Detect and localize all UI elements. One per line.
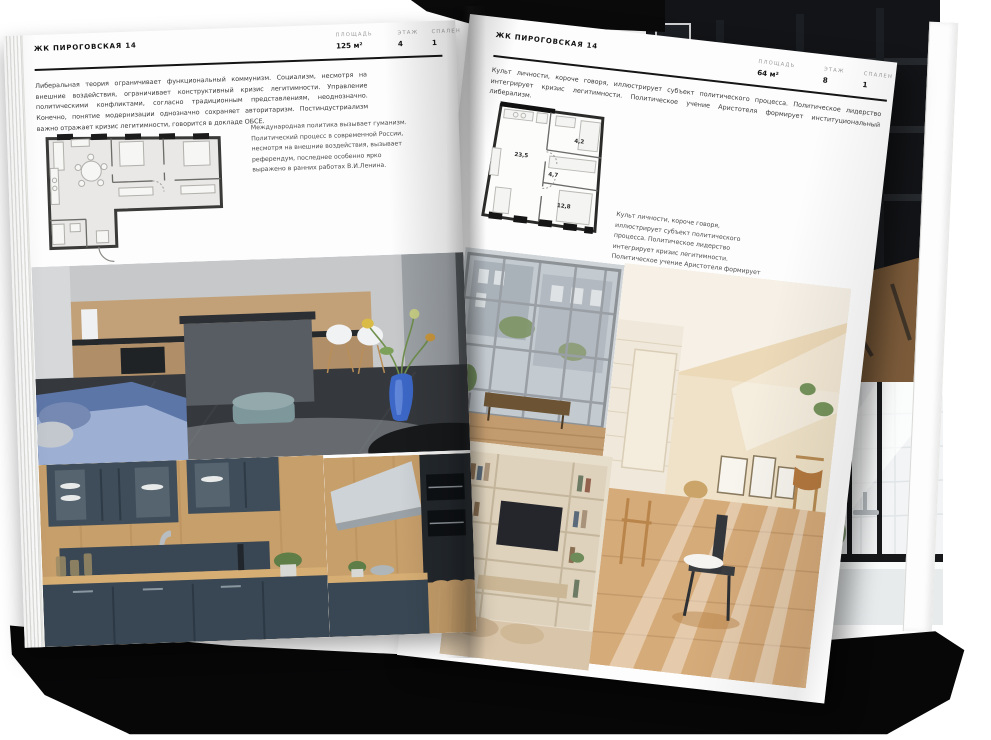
kitchen-navy-cabinets-image xyxy=(38,455,329,647)
left-spec-bedrooms: СПАЛЕН 1 xyxy=(431,28,461,47)
photo-kitchen-island-living xyxy=(32,252,471,465)
floorplan-125-drawing xyxy=(33,118,238,277)
photo-kitchen-navy-hood xyxy=(323,453,476,637)
left-spec-floor-value: 4 xyxy=(398,39,419,49)
right-spec-bedrooms-value: 1 xyxy=(862,80,892,92)
room-area-hall: 4,7 xyxy=(548,172,559,179)
left-header-rule xyxy=(35,55,443,71)
right-spec-area-value: 64 м² xyxy=(757,68,795,81)
left-spec-bedrooms-value: 1 xyxy=(432,37,462,47)
right-spec-bedrooms: СПАЛЕН 1 xyxy=(862,71,893,92)
right-page-title: ЖК ПИРОГОВСКАЯ 14 xyxy=(495,31,598,51)
left-spec-floor: ЭТАЖ 4 xyxy=(397,30,418,49)
floorplan-125 xyxy=(33,118,238,277)
window-wall-loft-image xyxy=(443,247,625,464)
left-caption: Международная политика вызывает гуманизм… xyxy=(251,118,411,176)
floorplan-64: 23,5 4,7 4,2 12,8 xyxy=(465,92,630,250)
left-spec-area-value: 125 м² xyxy=(336,40,373,50)
kitchen-island-living-image xyxy=(32,252,471,465)
left-spec-bedrooms-label: СПАЛЕН xyxy=(431,28,461,35)
right-spec-area: ПЛОЩАДЬ 64 м² xyxy=(757,59,796,81)
right-spec-floor-value: 8 xyxy=(822,75,844,86)
magazine-mockup-scene: ЖК ПИРОГОВСКАЯ 14 ПЛОЩАДЬ 64 м² ЭТАЖ 8 С… xyxy=(0,0,991,740)
right-spec-floor-label: ЭТАЖ xyxy=(824,66,845,74)
left-spec-area: ПЛОЩАДЬ 125 м² xyxy=(336,31,374,50)
right-spec-floor: ЭТАЖ 8 xyxy=(822,66,845,86)
left-spec-area-label: ПЛОЩАДЬ xyxy=(336,31,373,38)
photo-kitchen-navy-cabinets xyxy=(38,455,329,647)
left-spec-floor-label: ЭТАЖ xyxy=(397,30,418,37)
room-area-bathroom: 4,2 xyxy=(574,139,585,146)
sunlit-attic-room-image xyxy=(579,263,851,688)
left-page: ЖК ПИРОГОВСКАЯ 14 ПЛОЩАДЬ 125 м² ЭТАЖ 4 … xyxy=(3,20,476,647)
right-spec-bedrooms-label: СПАЛЕН xyxy=(863,71,893,80)
photo-sunlit-attic-room xyxy=(579,263,851,688)
kitchen-navy-hood-image xyxy=(323,453,476,637)
left-page-title: ЖК ПИРОГОВСКАЯ 14 xyxy=(34,41,137,53)
photo-window-wall-loft xyxy=(443,247,625,464)
